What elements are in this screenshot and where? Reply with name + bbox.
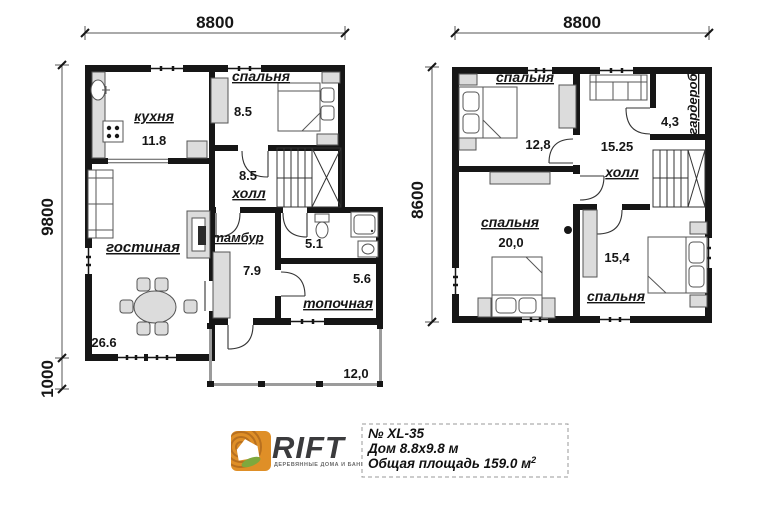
hall-sofa	[590, 75, 647, 100]
boiler-label: топочная	[303, 295, 373, 311]
dim-width-label: 8800	[196, 13, 234, 32]
bedroom3-nightstand	[690, 222, 707, 234]
kitchen-fridge	[187, 141, 207, 158]
hall-area: 8.5	[239, 168, 257, 183]
bedroom1-nightstand	[459, 74, 477, 85]
bedroom1-area: 12,8	[525, 137, 550, 152]
brand-name: RIFT	[272, 430, 347, 465]
bedroom3-label: спальня	[587, 288, 645, 304]
fireplace	[187, 211, 210, 258]
wardrobe-label: гардероб	[685, 72, 700, 134]
spec-box: № XL-35 Дом 8.8x9.8 м Общая площадь 159.…	[362, 424, 568, 477]
bedroom-nightstand	[317, 134, 338, 145]
toilet	[315, 214, 329, 238]
hall-area: 15.25	[601, 139, 634, 154]
hall-label: холл	[604, 164, 639, 180]
bedroom1-label: спальня	[496, 69, 554, 85]
boiler-area: 5.6	[353, 271, 371, 286]
chimney-dot	[564, 226, 572, 234]
bathroom-sink	[358, 241, 378, 257]
bedroom3-nightstand	[690, 295, 707, 307]
first-floor-plan: 8800 9800 1000	[38, 13, 383, 398]
kitchen-sink	[91, 80, 110, 100]
bedroom3-bed	[648, 237, 707, 293]
bedroom3-area: 15,4	[604, 250, 630, 265]
bedroom1-closet	[559, 85, 576, 128]
bedroom2-bed	[492, 257, 542, 317]
bedroom3-closet	[583, 210, 597, 277]
bedroom2-closet	[490, 172, 550, 184]
vestibule-label: тамбур	[212, 230, 263, 245]
rift-logo: RIFT ДЕРЕВЯННЫЕ ДОМА И БАНИ	[221, 427, 365, 471]
living-label: гостиная	[106, 239, 180, 256]
brand-tagline: ДЕРЕВЯННЫЕ ДОМА И БАНИ	[274, 462, 365, 468]
wardrobe-area: 4,3	[661, 114, 679, 129]
spec-dimensions: Дом 8.8x9.8 м	[367, 441, 459, 456]
bedroom-closet	[211, 78, 228, 123]
bedroom-area: 8.5	[234, 104, 252, 119]
shower	[351, 212, 378, 237]
terrace-area: 12,0	[343, 366, 368, 381]
bedroom2-nightstand	[478, 298, 491, 317]
kitchen-stove	[103, 121, 123, 142]
kitchen-area: 11.8	[142, 133, 167, 148]
bedroom2-label: спальня	[481, 214, 539, 230]
dim-height-label: 9800	[38, 198, 57, 236]
rift-logo-icon	[221, 427, 271, 471]
living-area: 26.6	[91, 335, 116, 350]
bedroom-label: спальня	[232, 68, 290, 84]
staircase	[277, 148, 341, 207]
spec-model: № XL-35	[368, 426, 424, 441]
bedroom1-bed	[459, 87, 517, 138]
footer: RIFT ДЕРЕВЯННЫЕ ДОМА И БАНИ № XL-35 Дом …	[221, 424, 568, 477]
bedroom-bed	[278, 83, 334, 131]
dim-terrace-label: 1000	[38, 360, 57, 398]
bedroom2-area: 20,0	[498, 235, 523, 250]
staircase	[653, 150, 705, 207]
floorplan-sheet: 8800 9800 1000	[0, 0, 763, 505]
dim-width-label: 8800	[563, 13, 601, 32]
bedroom1-nightstand	[459, 138, 476, 150]
living-sofa	[88, 170, 113, 238]
bedroom-nightstand	[322, 72, 340, 83]
bedroom2-nightstand	[542, 298, 555, 318]
vestibule-closet	[213, 252, 230, 318]
dim-height-label: 8600	[408, 181, 427, 219]
second-floor-plan: 8800 8600	[408, 13, 713, 326]
vestibule-area: 7.9	[243, 263, 261, 278]
hall-label: холл	[231, 185, 266, 201]
bathroom-area: 5.1	[305, 236, 323, 251]
floorplan-drawing: 8800 9800 1000	[0, 0, 763, 505]
kitchen-label: кухня	[134, 108, 174, 124]
dining-table	[120, 278, 197, 335]
spec-total-area: Общая площадь 159.0 м2	[368, 455, 536, 471]
